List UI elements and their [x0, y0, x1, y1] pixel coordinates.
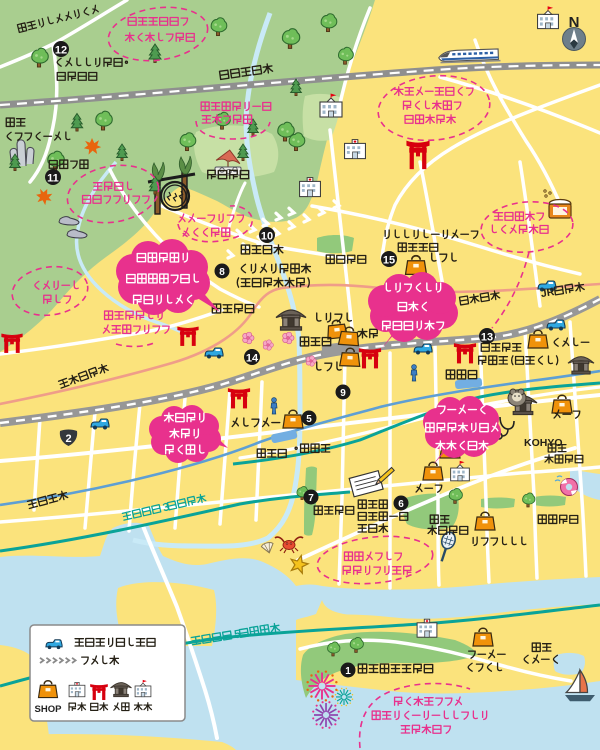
svg-text:５: ５ [232, 628, 244, 641]
svg-text:7: 7 [308, 493, 314, 504]
svg-text:5: 5 [306, 414, 312, 425]
svg-text:1: 1 [345, 666, 351, 677]
svg-text:JR: JR [540, 286, 556, 300]
svg-text:2: 2 [65, 433, 71, 445]
svg-text:SHOP: SHOP [35, 704, 63, 715]
svg-text:13: 13 [481, 331, 493, 343]
svg-text:11: 11 [47, 172, 59, 184]
svg-text:14: 14 [246, 352, 259, 364]
svg-text:12: 12 [55, 44, 67, 56]
svg-text:8: 8 [219, 267, 225, 278]
svg-text:15: 15 [383, 254, 395, 266]
svg-text:9: 9 [340, 388, 346, 399]
svg-text:KOHYO: KOHYO [524, 437, 563, 449]
svg-text:6: 6 [398, 499, 404, 510]
svg-text:10: 10 [261, 230, 273, 242]
